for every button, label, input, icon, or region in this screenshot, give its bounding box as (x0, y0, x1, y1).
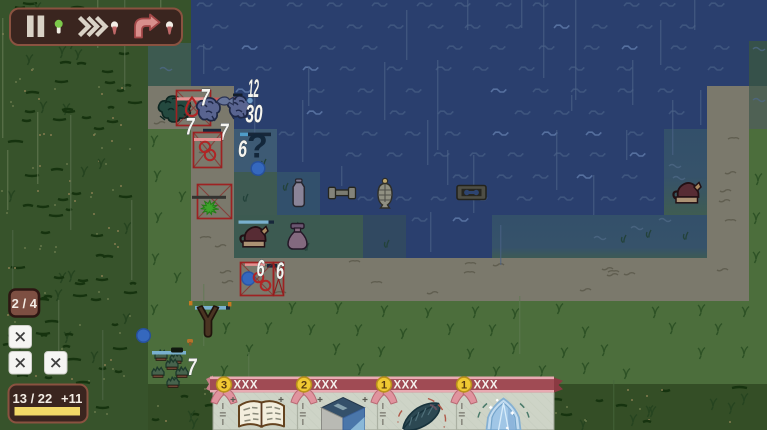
svg-text:30: 30 (246, 101, 263, 129)
svg-text:7: 7 (201, 85, 211, 112)
svg-text:?: ? (247, 128, 268, 166)
svg-text:1: 1 (461, 380, 467, 392)
svg-text:6: 6 (257, 256, 265, 283)
svg-text:7: 7 (188, 354, 198, 381)
svg-text:+11: +11 (61, 391, 82, 406)
svg-text:12: 12 (248, 75, 259, 103)
svg-text:XXX: XXX (474, 380, 499, 392)
svg-text:2 / 4: 2 / 4 (12, 296, 38, 311)
svg-text:XXX: XXX (394, 380, 419, 392)
svg-text:XXX: XXX (314, 380, 339, 392)
svg-text:6: 6 (238, 136, 247, 163)
svg-text:XXX: XXX (234, 380, 259, 392)
svg-text:1: 1 (381, 380, 387, 392)
svg-text:2: 2 (301, 380, 307, 392)
svg-text:3: 3 (221, 380, 227, 392)
svg-text:13 / 22: 13 / 22 (13, 391, 53, 406)
svg-text:6: 6 (276, 258, 284, 285)
